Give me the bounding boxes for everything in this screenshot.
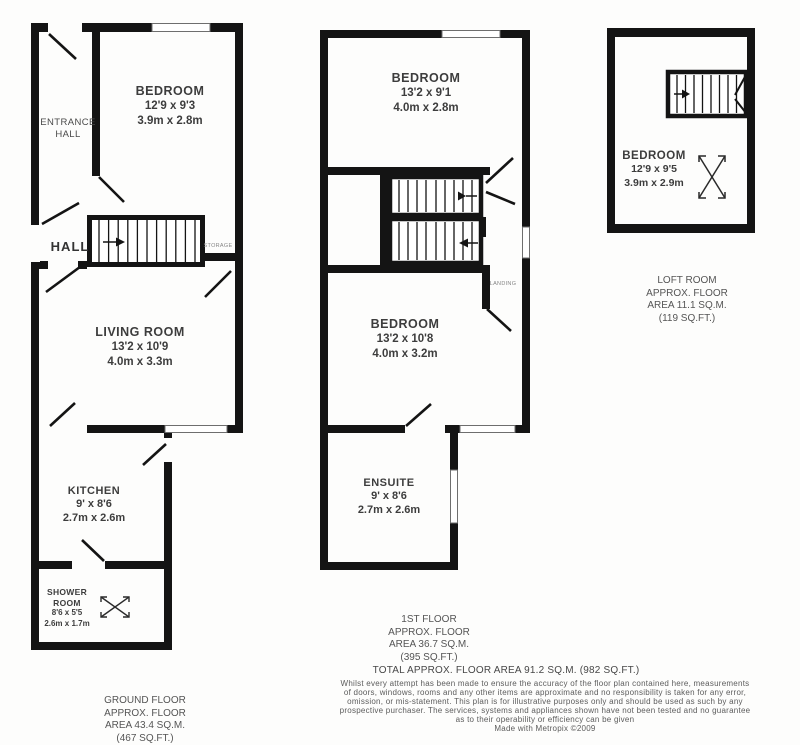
first-floor-caption: 1ST FLOOR APPROX. FLOOR AREA 36.7 SQ.M. … xyxy=(388,614,470,664)
caption-line1: LOFT ROOM xyxy=(646,275,728,288)
total-area-label: TOTAL APPROX. FLOOR AREA 91.2 SQ.M. (982… xyxy=(373,665,640,676)
loft-bedroom-label: BEDROOM 12'9 x 9'5 3.9m x 2.9m xyxy=(622,149,686,190)
room-size-metric: 4.0m x 2.8m xyxy=(392,101,461,116)
ensuite-door-swing xyxy=(406,404,431,426)
caption-line3: AREA 43.4 SQ.M. xyxy=(104,720,186,733)
stair-winder-line xyxy=(486,192,515,204)
room-size-imperial: 13'2 x 9'1 xyxy=(392,86,461,101)
caption-line1: 1ST FLOOR xyxy=(388,614,470,627)
metropix-credit: Made with Metropix ©2009 xyxy=(340,724,751,733)
room-size-imperial: 9' x 8'6 xyxy=(63,498,125,512)
living-room-door-swing-left xyxy=(46,264,84,292)
room-size-metric: 4.0m x 3.2m xyxy=(371,347,440,362)
first-bedroom-front-label: BEDROOM 13'2 x 9'1 4.0m x 2.8m xyxy=(392,71,461,115)
room-name-line2: ROOM xyxy=(44,598,89,609)
caption-line2: APPROX. FLOOR xyxy=(104,708,186,721)
disclaimer-line4: prospective purchaser. The services, sys… xyxy=(340,706,751,715)
caption-line3: AREA 11.1 SQ.M. xyxy=(646,300,728,313)
room-name: BEDROOM xyxy=(136,84,205,99)
loft-walls xyxy=(607,28,755,233)
shower-room-dimension-cross-icon xyxy=(101,597,129,617)
room-size-imperial: 12'9 x 9'3 xyxy=(136,99,205,114)
ensuite-label: ENSUITE 9' x 8'6 2.7m x 2.6m xyxy=(358,476,420,517)
first-floor-staircase xyxy=(390,177,481,263)
shower-room-label: SHOWER ROOM 8'6 x 5'5 2.6m x 1.7m xyxy=(44,587,89,629)
disclaimer-line5: as to their operability or efficiency ca… xyxy=(340,715,751,724)
loft-caption: LOFT ROOM APPROX. FLOOR AREA 11.1 SQ.M. … xyxy=(646,275,728,325)
living-room-label: LIVING ROOM 13'2 x 10'9 4.0m x 3.3m xyxy=(95,325,185,369)
living-room-door-swing-right xyxy=(205,271,231,297)
disclaimer-line3: omission, or mis-statement. This plan is… xyxy=(340,697,751,706)
room-name: KITCHEN xyxy=(63,484,125,498)
ground-floor-caption: GROUND FLOOR APPROX. FLOOR AREA 43.4 SQ.… xyxy=(104,695,186,745)
room-size-imperial: 12'9 x 9'5 xyxy=(622,163,686,177)
loft-dimension-cross-icon xyxy=(699,156,725,198)
caption-line2: APPROX. FLOOR xyxy=(388,627,470,640)
bedroom-door-swing xyxy=(99,177,124,202)
entrance-hall-line2: HALL xyxy=(40,129,95,141)
room-size-imperial: 9' x 8'6 xyxy=(358,490,420,504)
ground-staircase xyxy=(90,218,203,265)
room-size-metric: 4.0m x 3.3m xyxy=(95,355,185,370)
disclaimer-text: Whilst every attempt has been made to en… xyxy=(340,679,751,733)
room-size-imperial: 13'2 x 10'8 xyxy=(371,332,440,347)
room-name: ENSUITE xyxy=(358,476,420,490)
landing-label: LANDING xyxy=(490,281,517,287)
room-name-line1: SHOWER xyxy=(44,587,89,598)
hall-door-swing-upper xyxy=(42,203,79,224)
floorplan-page: ENTRANCE HALL BEDROOM 12'9 x 9'3 3.9m x … xyxy=(0,0,800,745)
room-size-imperial: 13'2 x 10'9 xyxy=(95,340,185,355)
storage-label: STORAGE xyxy=(204,243,233,249)
kitchen-side-door-swing xyxy=(143,444,166,465)
caption-line2: APPROX. FLOOR xyxy=(646,288,728,301)
bedroom-front-door-swing xyxy=(486,158,513,183)
bedroom-back-door-swing xyxy=(487,309,511,331)
room-size-metric: 2.7m x 2.6m xyxy=(358,504,420,518)
room-name: BEDROOM xyxy=(622,149,686,163)
room-size-metric: 2.7m x 2.6m xyxy=(63,512,125,526)
room-size-metric: 3.9m x 2.9m xyxy=(622,177,686,191)
caption-line3: AREA 36.7 SQ.M. xyxy=(388,639,470,652)
room-size-metric: 2.6m x 1.7m xyxy=(44,619,89,630)
entrance-hall-line1: ENTRANCE xyxy=(40,117,95,129)
disclaimer-line2: of doors, windows, rooms and any other i… xyxy=(340,688,751,697)
caption-line4: (467 SQ.FT.) xyxy=(104,733,186,745)
kitchen-label: KITCHEN 9' x 8'6 2.7m x 2.6m xyxy=(63,484,125,525)
loft-staircase xyxy=(668,72,746,116)
front-door-swing xyxy=(49,34,76,59)
room-name: BEDROOM xyxy=(392,71,461,86)
room-name: LIVING ROOM xyxy=(95,325,185,340)
caption-line1: GROUND FLOOR xyxy=(104,695,186,708)
room-size-metric: 3.9m x 2.8m xyxy=(136,114,205,129)
ground-bedroom-label: BEDROOM 12'9 x 9'3 3.9m x 2.8m xyxy=(136,84,205,128)
hall-label: HALL xyxy=(51,239,90,254)
room-name: BEDROOM xyxy=(371,317,440,332)
loft-plan xyxy=(607,28,755,233)
shower-room-door-swing xyxy=(82,540,104,561)
disclaimer-line1: Whilst every attempt has been made to en… xyxy=(340,679,751,688)
kitchen-door-swing xyxy=(50,403,75,426)
first-bedroom-back-label: BEDROOM 13'2 x 10'8 4.0m x 3.2m xyxy=(371,317,440,361)
caption-line4: (395 SQ.FT.) xyxy=(388,652,470,665)
entrance-hall-label: ENTRANCE HALL xyxy=(40,117,95,140)
room-size-imperial: 8'6 x 5'5 xyxy=(44,608,89,619)
caption-line4: (119 SQ.FT.) xyxy=(646,313,728,326)
